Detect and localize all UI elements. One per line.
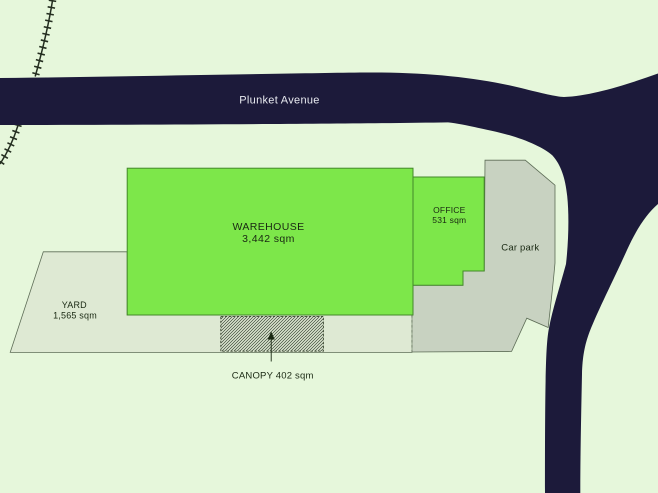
yard-size-label: 1,565 sqm <box>53 311 97 321</box>
canopy-label: CANOPY 402 sqm <box>232 371 314 382</box>
office-name-label: OFFICE <box>433 205 465 215</box>
warehouse-name-label: WAREHOUSE <box>232 221 304 233</box>
office-building <box>413 177 484 285</box>
yard-name-label: YARD <box>62 300 87 310</box>
office-size-label: 531 sqm <box>432 215 466 225</box>
site-plan: Plunket Avenue WAREHOUSE 3,442 sqm OFFIC… <box>0 0 658 493</box>
site-plan-page: Plunket Avenue WAREHOUSE 3,442 sqm OFFIC… <box>0 0 658 493</box>
street-name-label: Plunket Avenue <box>239 95 319 107</box>
car-park-label: Car park <box>501 243 539 254</box>
warehouse-size-label: 3,442 sqm <box>242 233 295 245</box>
